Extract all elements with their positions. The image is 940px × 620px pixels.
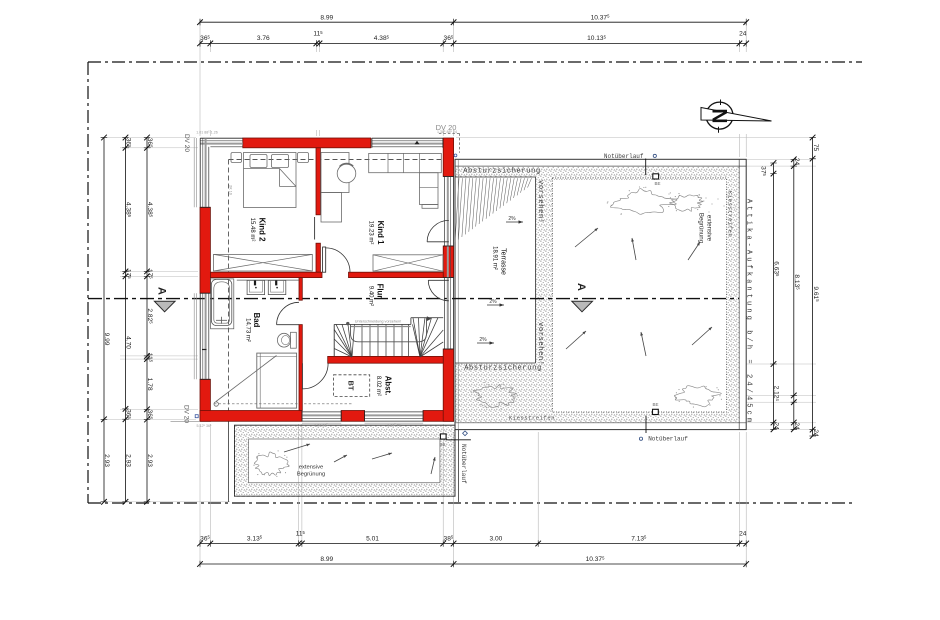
svg-text:extensive: extensive [706,215,713,242]
svg-text:Abst.: Abst. [384,376,393,396]
svg-text:2K 10: 2K 10 [229,185,233,195]
svg-text:Notüberlauf: Notüberlauf [460,444,467,484]
svg-text:24: 24 [772,422,779,430]
svg-text:8.99: 8.99 [320,556,333,563]
svg-text:Kiesstreifen: Kiesstreifen [509,415,555,422]
svg-text:A: A [156,287,168,295]
svg-text:Attika-Aufkantung b/h = 24/45c: Attika-Aufkantung b/h = 24/45cm [744,199,752,425]
svg-text:2.93: 2.93 [124,454,131,467]
svg-text:15.48 m²: 15.48 m² [249,218,255,242]
svg-text:8.99: 8.99 [320,14,333,21]
svg-text:2%: 2% [479,337,487,343]
svg-text:Kiesstreifen: Kiesstreifen [727,191,734,237]
svg-text:24: 24 [739,31,747,38]
svg-text:Kind 2: Kind 2 [258,218,267,242]
svg-text:Absturzsicherung: Absturzsicherung [464,365,542,373]
svg-text:4.70: 4.70 [124,336,131,349]
svg-text:3.76: 3.76 [257,35,270,42]
svg-text:vorsehen!: vorsehen! [536,322,544,366]
svg-text:9.40 m²: 9.40 m² [368,286,374,306]
svg-text:Absturzsicherung: Absturzsicherung [463,168,541,176]
svg-text:2.93: 2.93 [146,454,153,467]
svg-text:Begrünung: Begrünung [698,213,705,244]
svg-text:BE: BE [654,181,660,186]
svg-text:Begrünung: Begrünung [297,472,325,478]
svg-text:19.23 m²: 19.23 m² [368,221,374,245]
svg-text:BE: BE [439,442,445,447]
svg-text:14.73 m²: 14.73 m² [245,318,251,342]
svg-text:24: 24 [793,422,800,430]
svg-text:DV 20: DV 20 [183,405,190,423]
svg-text:75: 75 [812,144,819,152]
svg-text:5.12⁵ 36⁵: 5.12⁵ 36⁵ [197,424,212,428]
svg-text:DV 20: DV 20 [183,134,190,152]
svg-text:8.02 m²: 8.02 m² [375,376,381,396]
svg-text:extensive: extensive [299,465,324,471]
svg-text:2%: 2% [489,299,497,305]
svg-text:A: A [575,283,587,291]
svg-text:2%: 2% [508,216,516,222]
svg-text:24: 24 [793,158,800,166]
svg-text:24: 24 [739,531,747,538]
svg-text:18.91 m²: 18.91 m² [492,246,498,270]
svg-text:24: 24 [812,429,819,437]
svg-text:Bad: Bad [252,313,261,328]
svg-text:BT: BT [347,381,356,391]
svg-text:Kind 1: Kind 1 [376,221,385,245]
svg-text:Unterschneidung vorsehen!: Unterschneidung vorsehen! [355,320,401,324]
svg-text:1.26 88⁵: 1.26 88⁵ [314,424,328,428]
svg-text:vorsehen!: vorsehen! [536,180,544,224]
svg-text:DV 20: DV 20 [436,123,457,132]
svg-text:2.93: 2.93 [103,454,110,467]
svg-text:9.99: 9.99 [103,333,110,346]
svg-text:Terrasse: Terrasse [500,248,507,275]
svg-text:1.01 88⁵ 1.26: 1.01 88⁵ 1.26 [196,131,217,135]
svg-text:Notüberlauf: Notüberlauf [604,153,644,160]
svg-text:3.00: 3.00 [489,535,502,542]
svg-text:1.88⁵ 76: 1.88⁵ 76 [387,424,400,428]
svg-text:5.01: 5.01 [366,535,379,542]
svg-text:Notüberlauf: Notüberlauf [648,436,688,443]
svg-text:BE: BE [652,402,658,407]
svg-text:1.78: 1.78 [146,378,153,391]
svg-text:N: N [707,108,730,123]
svg-text:Flur: Flur [376,284,385,299]
